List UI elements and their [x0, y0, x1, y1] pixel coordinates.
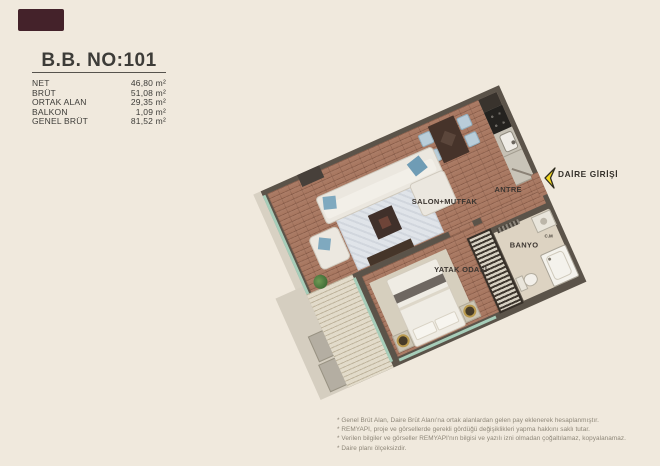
entrance-arrow-icon — [544, 167, 556, 189]
throw-pillow — [323, 196, 337, 210]
bed-pillow — [434, 311, 460, 331]
washing-machine-label: C.M — [545, 234, 553, 239]
footnote-line: * Genel Brüt Alan, Daire Brüt Alanı'na o… — [337, 416, 626, 425]
footnote-line: * REMYAPI, proje ve görsellerde gerekli … — [337, 425, 626, 434]
shower-tray — [545, 250, 573, 281]
entrance-arrow-shape — [545, 168, 555, 188]
brochure-page: { "page": { "background": "#f0e9dd" }, "… — [0, 0, 660, 466]
room-label-banyo: BANYO — [510, 240, 539, 249]
floor-plan: SALON+MUTFAK ANTRE BANYO YATAK ODASI C.M — [261, 85, 587, 388]
brand-logo — [18, 9, 64, 31]
footnote-line: * Daire planı ölçeksizdir. — [337, 444, 626, 453]
area-value: 81,52 m² — [131, 117, 166, 127]
entrance-label: DAİRE GİRİŞİ — [558, 169, 618, 179]
room-label-salon-mutfak: SALON+MUTFAK — [412, 197, 477, 206]
bed-pillow — [412, 320, 438, 340]
room-label-antre: ANTRE — [495, 185, 522, 194]
unit-title: B.B. NO:101 — [32, 50, 166, 72]
throw-pillow — [318, 237, 331, 250]
title-rule — [32, 72, 166, 73]
room-label-yatak-odasi: YATAK ODASI — [434, 265, 487, 274]
area-label: GENEL BRÜT — [32, 117, 88, 127]
washbasin-bowl — [539, 217, 548, 226]
footnote-line: * Verilen bilgiler ve görseller REMYAPI'… — [337, 434, 626, 443]
sink-drain — [511, 140, 516, 145]
footnotes: * Genel Brüt Alan, Daire Brüt Alanı'na o… — [337, 416, 626, 453]
area-table: NET 46,80 m² BRÜT 51,08 m² ORTAK ALAN 29… — [32, 79, 166, 127]
area-row-genel-brut: GENEL BRÜT 81,52 m² — [32, 117, 166, 127]
